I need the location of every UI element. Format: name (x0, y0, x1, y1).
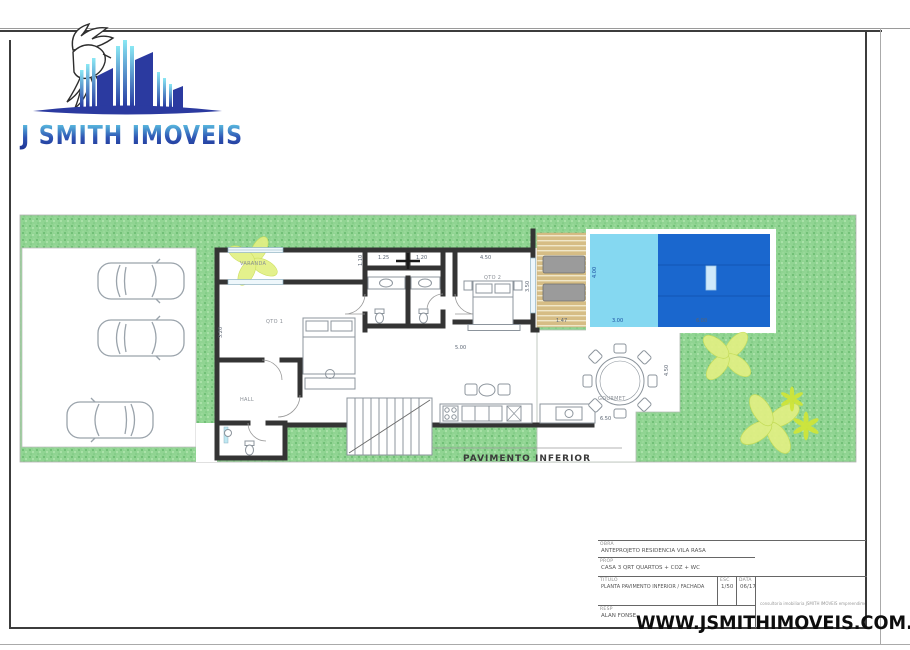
date-cell: DATA 06/17 (736, 576, 756, 605)
pool-shallow (590, 234, 658, 327)
pool-lounger (543, 284, 585, 301)
dim-label: 3.20 (218, 327, 224, 338)
bed-qto1 (303, 318, 355, 389)
titleblock-row: TITULO PLANTA PAVIMENTO INFERIOR / FACHA… (598, 576, 717, 606)
dim-label: 1.20 (416, 255, 427, 261)
bed-qto2 (464, 281, 522, 331)
titleblock-text: ANTEPROJETO RESIDENCIA VILA RASA (601, 548, 866, 554)
pool-lounger (543, 256, 585, 273)
plan-caption: PAVIMENTO INFERIOR (463, 454, 591, 464)
car-top-view (67, 398, 153, 442)
pool-ladder (706, 266, 716, 290)
dim-label: 6.00 (696, 318, 707, 324)
dim-label: 1.47 (556, 318, 567, 324)
titleblock-text: CASA 3 QRT QUARTOS + COZ + WC (601, 565, 755, 571)
scale-cell: ESC 1/50 (717, 576, 737, 605)
dim-label: 4.50 (480, 255, 491, 261)
staircase (347, 398, 432, 455)
room-label-hall: HALL (240, 397, 254, 403)
dim-label: 4.00 (592, 267, 598, 278)
dim-label: 1.10 (358, 255, 364, 266)
titleblock-label: TITULO (600, 578, 717, 583)
room-label-qto2: QTO 2 (484, 275, 501, 281)
room-label-gourmet: GOURMET (598, 396, 626, 402)
side-note: consultoria imobiliaria JSMITH IMOVEIS e… (760, 601, 865, 606)
room-label-qto1: QTO 1 (266, 319, 283, 325)
room-label-varanda: VARANDA (240, 261, 267, 267)
dim-label: 5.00 (455, 345, 466, 351)
titleblock-label: PROP (600, 559, 755, 564)
date-value: 06/17 (740, 584, 756, 590)
kitchen-counter (440, 404, 532, 423)
dim-label: 6.50 (600, 416, 611, 422)
titleblock-label: OBRA (600, 542, 866, 547)
titleblock-row: OBRA ANTEPROJETO RESIDENCIA VILA RASA (598, 540, 866, 558)
date-label: DATA (739, 578, 756, 583)
car-top-view (98, 259, 184, 303)
path-area (196, 423, 217, 462)
dim-label: 3.50 (525, 281, 531, 292)
dim-label: 1.25 (378, 255, 389, 261)
scale-label: ESC (720, 578, 737, 583)
titleblock-row: PROP CASA 3 QRT QUARTOS + COZ + WC (598, 557, 755, 577)
pool-deck (537, 233, 589, 327)
scale-value: 1/50 (721, 584, 737, 590)
dim-label: 3.00 (612, 318, 623, 324)
car-top-view (98, 316, 184, 360)
website-watermark: WWW.JSMITHIMOVEIS.COM.BR (636, 612, 891, 634)
gourmet-counter (540, 404, 595, 423)
dim-label: 4.50 (664, 365, 670, 376)
titleblock-text: PLANTA PAVIMENTO INFERIOR / FACHADA (601, 584, 717, 590)
breakfast-table (465, 384, 510, 396)
